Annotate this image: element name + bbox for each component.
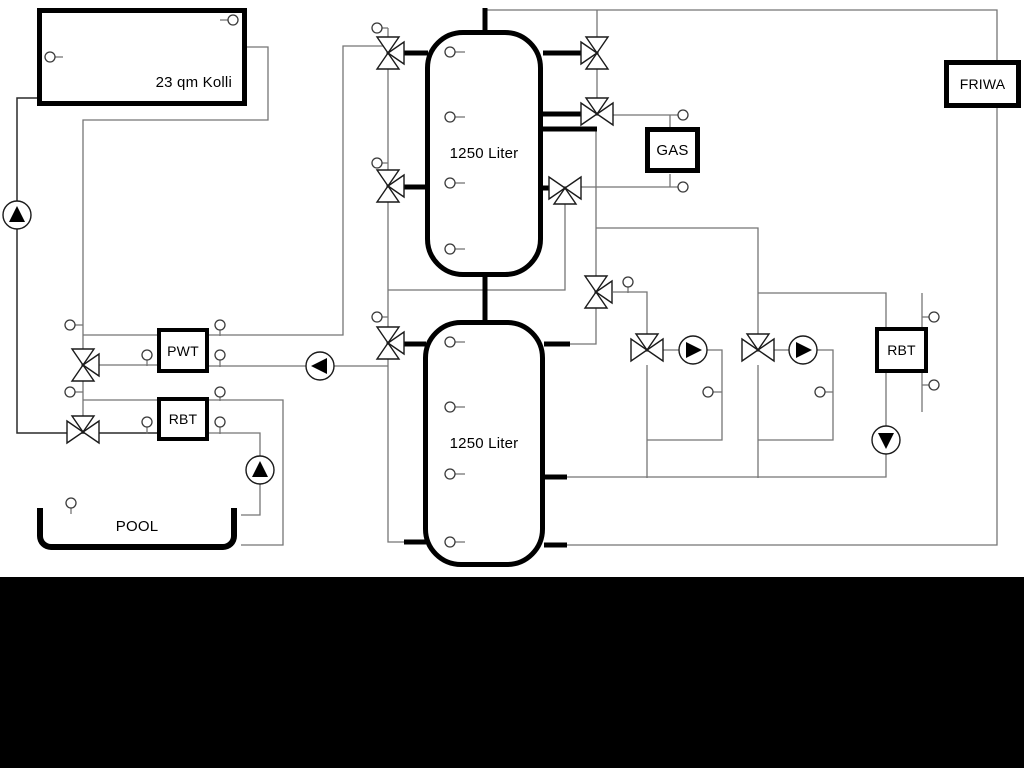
pool-basin: POOL [37,508,237,550]
rbt-right-box: RBT [875,327,928,373]
pipe-line [566,108,997,545]
pipe-line [566,373,886,477]
sensor-port-icon [215,387,225,397]
three-way-valve-icon [594,290,597,293]
sensor-port-icon [372,312,382,322]
sensor-port-icon [215,417,225,427]
rbt-right-label: RBT [887,342,916,358]
sensor-port-icon [623,277,633,287]
sensor-port-icon [703,387,713,397]
hydraulic-schematic: 23 qm Kolli 1250 Liter 1250 Liter PWT RB… [0,0,1024,768]
sensor-port-icon [929,380,939,390]
buffer-tank-bottom-label: 1250 Liter [450,435,519,452]
pipe-line [613,292,647,335]
sensor-port-icon [142,417,152,427]
friwa-label: FRIWA [960,76,1006,92]
pwt-label: PWT [167,343,199,359]
pipe-line [570,129,596,344]
three-way-valve-icon [595,51,598,54]
pipe-line [758,293,886,327]
gas-label: GAS [656,142,688,159]
three-way-valve-icon [81,363,84,366]
pwt-heat-exchanger-box: PWT [157,328,209,373]
gas-boiler-box: GAS [645,127,700,173]
solar-collector-box: 23 qm Kolli [37,8,247,106]
bottom-black-band [0,577,1024,768]
three-way-valve-icon [386,341,389,344]
three-way-valve-icon [595,112,598,115]
sensor-port-icon [678,182,688,192]
sensor-port-icon [66,498,76,508]
three-way-valve-icon [563,186,566,189]
sensor-port-icon [215,350,225,360]
sensor-port-icon [65,387,75,397]
sensor-port-icon [215,320,225,330]
sensor-port-icon [929,312,939,322]
three-way-valve-icon [386,51,389,54]
sensor-port-icon [372,158,382,168]
rbt-left-label: RBT [169,411,198,427]
three-way-valve-icon [756,348,759,351]
friwa-station-box: FRIWA [944,60,1021,108]
sensor-port-icon [142,350,152,360]
sensor-port-icon [372,23,382,33]
sensor-port-icon [815,387,825,397]
pipe-line [596,228,758,335]
three-way-valve-icon [81,430,84,433]
sensor-port-icon [678,110,688,120]
buffer-tank-top-box: 1250 Liter [425,30,543,277]
pool-label: POOL [116,518,158,535]
pipe-line [388,366,405,542]
solar-collector-label: 23 qm Kolli [156,74,232,91]
pipe-line [17,98,157,433]
buffer-tank-top-label: 1250 Liter [450,145,519,162]
three-way-valve-icon [645,348,648,351]
buffer-tank-bottom-box: 1250 Liter [423,320,545,567]
sensor-port-icon [65,320,75,330]
rbt-left-box: RBT [157,397,209,441]
three-way-valve-icon [386,184,389,187]
